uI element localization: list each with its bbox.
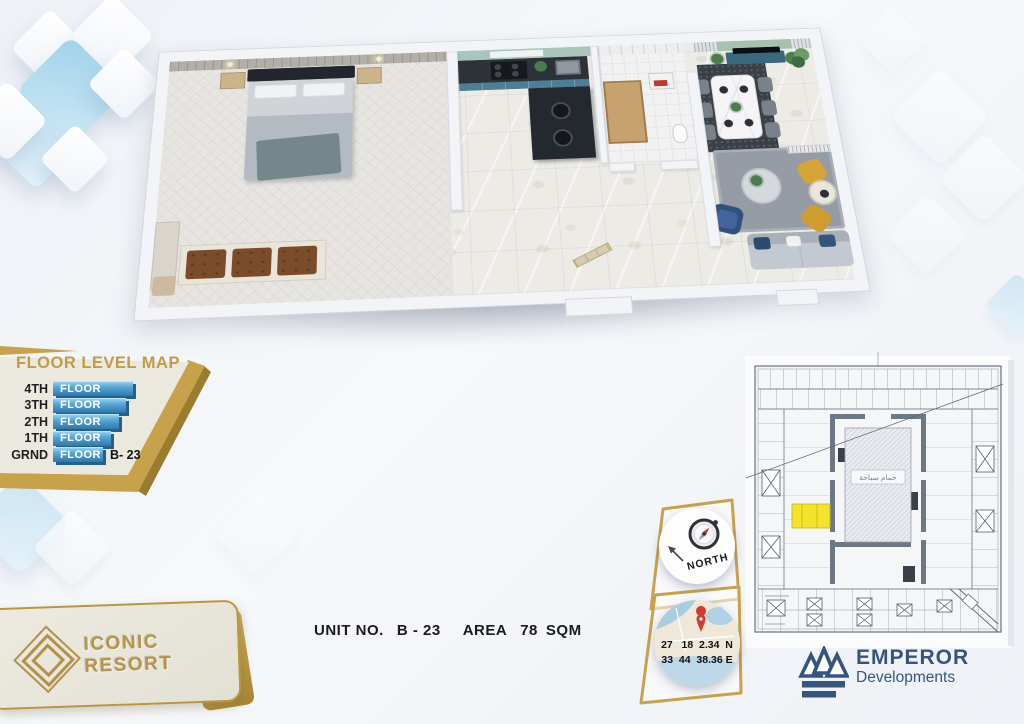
floor-bar-label: FLOOR bbox=[60, 383, 101, 395]
burner bbox=[494, 64, 501, 70]
coordinates: 27 18 2.34 N 33 44 38.36 E bbox=[654, 638, 740, 668]
dining-chair bbox=[764, 122, 781, 138]
sofa-pillow bbox=[753, 237, 771, 250]
longitude: 33 44 38.36 E bbox=[654, 653, 740, 668]
kitchen-sink bbox=[555, 60, 581, 76]
floor-row-label: 3TH bbox=[6, 398, 53, 412]
shower-box bbox=[603, 80, 648, 144]
pillow bbox=[302, 82, 345, 97]
door-jamb bbox=[776, 289, 820, 306]
burner bbox=[512, 71, 519, 77]
bathroom-vanity bbox=[648, 72, 675, 89]
floor-level-row: GRND FLOOR B- 23 bbox=[6, 447, 184, 462]
stool bbox=[151, 276, 176, 296]
interior-wall bbox=[609, 162, 636, 172]
decorative-diamond bbox=[886, 194, 968, 276]
sofa-pillow bbox=[786, 236, 802, 247]
unit-value: B - 23 bbox=[397, 622, 441, 639]
table-centerpiece bbox=[730, 102, 742, 112]
door-jamb bbox=[565, 296, 634, 316]
floor-bar: FLOOR bbox=[53, 414, 119, 429]
floor-bar: FLOOR bbox=[53, 431, 111, 446]
north-label: NORTH bbox=[686, 551, 730, 573]
compass-knob bbox=[713, 520, 718, 525]
plate bbox=[719, 86, 729, 94]
floor-level-rows: 4TH FLOOR 3TH FLOOR 2TH FLOOR 1TH FLOOR … bbox=[6, 381, 184, 462]
plate bbox=[744, 119, 754, 127]
floor-level-row: 2TH FLOOR bbox=[6, 414, 184, 429]
floor-bar: FLOOR bbox=[53, 447, 103, 462]
sofa-pillow bbox=[818, 234, 836, 247]
floor-row-label: 2TH bbox=[6, 415, 53, 429]
emperor-crown-icon bbox=[797, 646, 849, 700]
courtyard-pool bbox=[845, 428, 911, 542]
floor-row-label: 1TH bbox=[6, 431, 53, 445]
dining-chair bbox=[757, 77, 774, 92]
floor-level-map: FLOOR LEVEL MAP 4TH FLOOR 3TH FLOOR 2TH … bbox=[6, 352, 184, 464]
latitude: 27 18 2.34 N bbox=[654, 638, 740, 653]
diamond-logo-icon bbox=[15, 627, 75, 687]
burner bbox=[495, 71, 502, 77]
slat-divider bbox=[787, 144, 832, 153]
decorative-diamond bbox=[984, 272, 1024, 337]
developer-name: EMPEROR bbox=[856, 646, 969, 669]
area-unit: SQM bbox=[546, 622, 582, 639]
plate bbox=[739, 85, 749, 93]
nightstand bbox=[220, 72, 246, 89]
unit-label: UNIT NO. bbox=[314, 622, 384, 639]
resort-name: ICONIC RESORT bbox=[83, 629, 238, 678]
page: { "floor_level_map": { "title": "FLOOR L… bbox=[0, 0, 1024, 724]
burner bbox=[511, 63, 518, 69]
pillow bbox=[254, 84, 297, 99]
area-value: 78 bbox=[520, 622, 538, 639]
tea-tray bbox=[819, 189, 829, 197]
plate bbox=[724, 119, 734, 127]
floor-level-row: 4TH FLOOR bbox=[6, 381, 184, 396]
floor-bar-label: FLOOR bbox=[60, 449, 101, 461]
decorative-diamond bbox=[858, 6, 926, 74]
nightstand bbox=[357, 67, 382, 84]
bed bbox=[244, 78, 353, 181]
floor-level-row: 1TH FLOOR bbox=[6, 431, 184, 446]
bench-seat bbox=[177, 240, 326, 286]
decorative-diamond bbox=[214, 492, 299, 577]
site-plan: حمام سباحة bbox=[745, 352, 1017, 652]
dining-chair bbox=[761, 100, 778, 116]
unit-info: UNIT NO. B - 23 AREA 78 SQM bbox=[314, 622, 582, 639]
bench-cushion bbox=[231, 247, 272, 277]
compass-badge: NORTH bbox=[659, 508, 735, 584]
floor-bar-label: FLOOR bbox=[60, 416, 101, 428]
floor-level-map-title: FLOOR LEVEL MAP bbox=[16, 354, 184, 373]
bench-cushion bbox=[277, 246, 317, 276]
throw-blanket bbox=[256, 133, 341, 181]
developer-subtitle: Developments bbox=[856, 669, 969, 687]
floor-row-label: GRND bbox=[6, 448, 53, 462]
compass-graphic: NORTH bbox=[659, 508, 735, 584]
bench-cushion bbox=[185, 249, 226, 279]
developer-logo: EMPEROR Developments bbox=[797, 646, 969, 700]
apartment-plan bbox=[134, 28, 869, 320]
apartment-3d-render bbox=[134, 28, 869, 320]
floor-level-row: 3TH FLOOR bbox=[6, 398, 184, 413]
highlighted-unit bbox=[792, 504, 830, 528]
floor-row-suffix: B- 23 bbox=[110, 448, 141, 462]
coffee-table-plant bbox=[750, 175, 764, 186]
floor-bar: FLOOR bbox=[53, 381, 133, 396]
area-label: AREA bbox=[463, 622, 508, 639]
floor-bar-label: FLOOR bbox=[60, 432, 101, 444]
slat-panel bbox=[694, 42, 718, 52]
floor-row-label: 4TH bbox=[6, 382, 53, 396]
palm-plant bbox=[784, 48, 814, 70]
sofa bbox=[746, 230, 855, 272]
resort-brand-card: ICONIC RESORT bbox=[0, 600, 242, 711]
kitchen-tall-unit bbox=[528, 86, 596, 160]
oven bbox=[552, 129, 573, 147]
location-badge: 27 18 2.34 N 33 44 38.36 E bbox=[654, 600, 740, 686]
courtyard-label: حمام سباحة bbox=[859, 473, 897, 482]
floor-bar: FLOOR bbox=[53, 398, 126, 413]
interior-wall bbox=[660, 160, 699, 170]
oven bbox=[551, 102, 572, 120]
stove bbox=[490, 61, 527, 80]
floor-bar-label: FLOOR bbox=[60, 399, 101, 411]
